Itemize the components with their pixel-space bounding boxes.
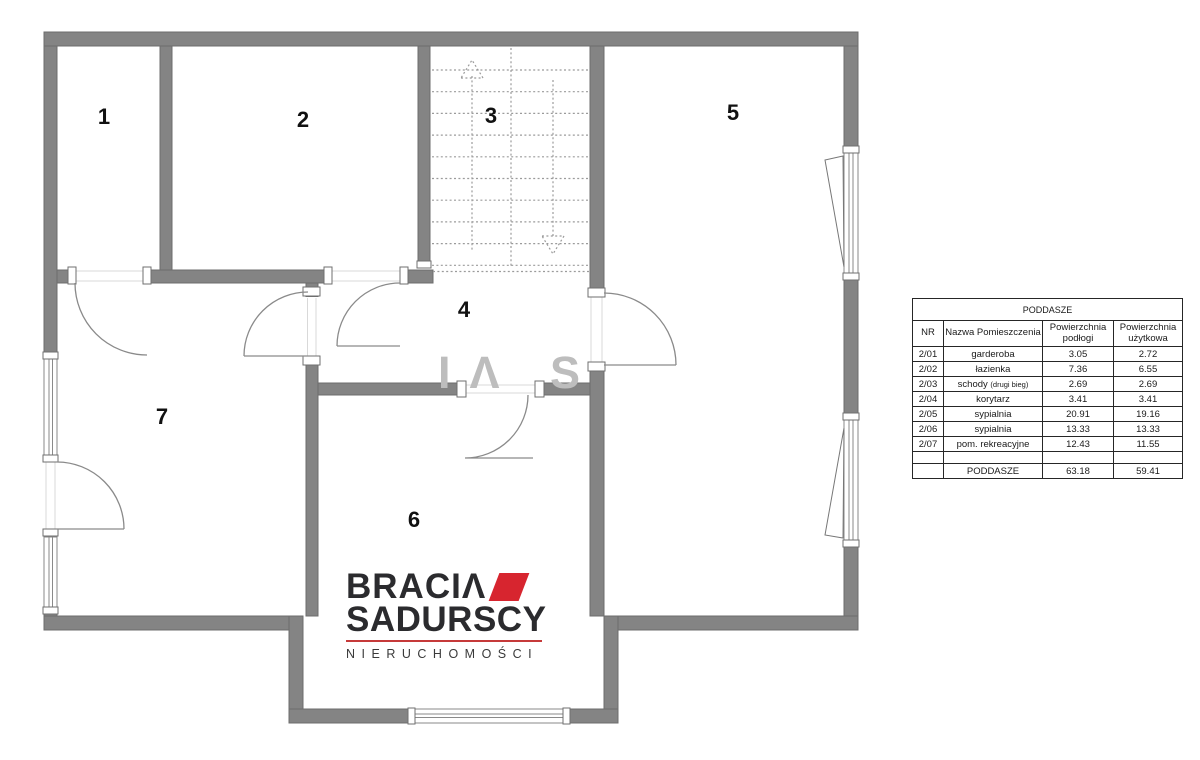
table-row: 2/04 korytarz 3.41 3.41 [913,392,1183,407]
wall-bay-right [604,616,618,723]
logo-red-mark-icon [489,573,530,601]
table-row-total: PODDASZE 63.18 59.41 [913,464,1183,479]
wall-stairs-room5 [590,46,604,290]
threshold-lines [46,271,602,529]
col-header-floor: Powierzchnia podłogi [1043,321,1114,347]
door-arc-room1 [75,283,147,355]
door-arc-room5 [604,293,676,365]
door-arc-room2 [337,283,400,346]
table-row: 2/02 łazienka 7.36 6.55 [913,362,1183,377]
table-row: 2/03 schody (drugi bieg) 2.69 2.69 [913,377,1183,392]
wall-room5-room6 [590,371,604,616]
window-left-upper [43,352,58,462]
stairs-down-arrow-icon [542,236,564,254]
table-row-empty [913,452,1183,464]
door-arc-balcony [57,462,124,529]
room-label-5: 5 [727,100,739,125]
col-header-name: Nazwa Pomieszczenia [944,321,1043,347]
col-header-usable: Powierzchnia użytkowa [1114,321,1183,347]
logo-word3: NIERUCHOMOŚCI [346,647,546,661]
wall-bottom-right [604,616,858,630]
logo-word1: BRACIΛ [346,570,546,604]
room-label-1: 1 [98,104,110,129]
stairs [432,48,589,272]
logo-divider [346,640,542,642]
window-right-lower [825,413,859,547]
table-row: 2/07 pom. rekreacyjne 12.43 11.55 [913,437,1183,452]
wall-room2-stairs [418,46,430,267]
room-label-4: 4 [458,297,471,322]
tilt-window-icon [825,156,844,267]
table-row: 2/01 garderoba 3.05 2.72 [913,347,1183,362]
col-header-nr: NR [913,321,944,347]
logo-word2: SADURSCY [346,604,546,636]
brand-logo: BRACIΛ SADURSCY NIERUCHOMOŚCI [346,570,546,661]
room-label-2: 2 [297,107,309,132]
window-right-upper [825,146,859,280]
wall-bottom-left [44,616,303,630]
door-arc-room7 [244,292,308,356]
wall-bay-left [289,616,303,723]
tilt-window-icon [825,428,844,538]
wall-room1-room2 [160,46,172,283]
window-left-lower [43,529,58,614]
door-arc-room6 [465,395,533,458]
table-title: PODDASZE [913,299,1183,321]
room-label-3: 3 [485,103,497,128]
floorplan-page: 1 2 3 4 5 6 7 IΛ S PODDASZE NR Nazwa Pom… [0,0,1200,760]
room-label-6: 6 [408,507,420,532]
wall-top [44,32,858,46]
table-row: 2/05 sypialnia 20.91 19.16 [913,407,1183,422]
window-bay-bottom [408,708,570,724]
table-row: 2/06 sypialnia 13.33 13.33 [913,422,1183,437]
area-table: PODDASZE NR Nazwa Pomieszczenia Powierzc… [912,298,1183,479]
wall-room6-room7 [306,361,318,616]
stairs-up-arrow-icon [461,60,483,78]
doors [57,283,676,529]
room-label-7: 7 [156,404,168,429]
